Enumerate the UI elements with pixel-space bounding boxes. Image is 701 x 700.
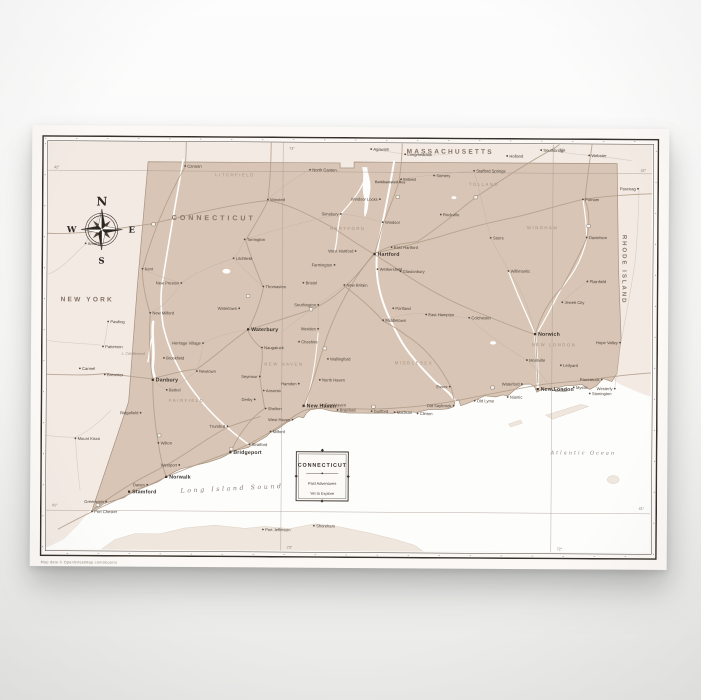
city-marker <box>91 511 93 513</box>
city-marker <box>370 148 372 150</box>
city-marker <box>263 390 265 392</box>
city-label: Southbridge <box>543 148 566 153</box>
city-label: Shoreham <box>316 523 336 528</box>
city-label: Farmington <box>312 262 333 267</box>
city-label: East Hampton <box>428 312 455 317</box>
city-label: Ansonia <box>266 388 282 393</box>
city-marker <box>79 367 81 369</box>
city-marker <box>158 442 160 444</box>
city-label: Heritage Village <box>172 341 202 346</box>
city-label: Holland <box>509 154 524 159</box>
city-label: Port Jefferson <box>265 527 291 532</box>
graticule-label: 73° <box>289 147 295 151</box>
city-label: Essex <box>436 384 447 389</box>
city-label: Pawcatuck <box>580 377 601 382</box>
city-label: East Hartford <box>394 245 419 250</box>
city-label: Danielson <box>589 235 608 240</box>
city-label: Danbury <box>156 377 178 383</box>
city-marker <box>440 214 442 216</box>
map-label: NEW HAVEN <box>264 361 303 366</box>
city-label: Stafford Springs <box>476 168 505 173</box>
city-marker <box>561 301 563 303</box>
city-label: Darien <box>133 482 146 487</box>
city-label: Litchfield <box>236 256 253 261</box>
city-marker <box>262 529 264 531</box>
map-label: TOLLAND <box>469 182 499 187</box>
city-label: Hartford <box>378 252 400 258</box>
map-label: FAIRFIELD <box>169 398 204 403</box>
city-marker <box>196 370 198 372</box>
photo-backdrop: MASSACHUSETTSNEW YORKRHODE ISLANDCONNECT… <box>0 0 701 700</box>
city-marker <box>394 411 396 413</box>
city-marker <box>355 250 357 252</box>
city-label: Norwalk <box>169 475 191 481</box>
city-marker <box>589 393 591 395</box>
city-label: Plainfield <box>590 279 607 284</box>
city-label: Somers <box>436 173 450 178</box>
city-label: Simsbury <box>322 211 340 216</box>
city-marker <box>180 282 182 284</box>
city-marker <box>371 410 373 412</box>
city-label: Westerly <box>597 386 614 391</box>
city-marker <box>382 221 384 223</box>
city-label: North Haven <box>322 377 346 382</box>
city-marker <box>337 409 339 411</box>
city-marker <box>270 431 272 433</box>
city-marker <box>184 165 186 167</box>
map-label: NEW YORK <box>61 296 114 303</box>
city-marker <box>233 257 235 259</box>
graticule-label: 41° <box>52 503 58 507</box>
city-label: Wethersfield <box>380 267 403 272</box>
city-marker <box>298 341 300 343</box>
city-label: Mount Kisco <box>78 436 101 441</box>
city-marker <box>146 484 148 486</box>
city-marker <box>433 175 435 177</box>
map-area: MASSACHUSETTSNEW YORKRHODE ISLANDCONNECT… <box>40 135 660 560</box>
city-label: Hope Valley <box>596 340 619 345</box>
city-marker <box>453 405 455 407</box>
city-marker <box>587 281 589 283</box>
city-marker <box>303 405 305 407</box>
city-label: Cheshire <box>301 339 318 344</box>
city-label: Ledyard <box>563 363 579 368</box>
city-label: Winsted <box>270 197 286 202</box>
city-marker <box>165 476 167 478</box>
city-marker <box>298 383 300 385</box>
city-label: New Britain <box>347 283 369 288</box>
map-label: MIDDLESEX <box>395 360 433 365</box>
city-marker <box>302 282 304 284</box>
map-label: WINDHAM <box>527 225 559 230</box>
city-label: Glastonbury <box>403 269 426 274</box>
city-marker <box>166 389 168 391</box>
city-label: North Canton <box>312 167 337 172</box>
city-label: Putnam <box>585 197 600 202</box>
city-label: Pawling <box>110 319 125 324</box>
city-label: Clinton <box>420 411 433 416</box>
city-marker <box>473 170 475 172</box>
block-island <box>607 476 619 484</box>
city-label: Carmel <box>82 366 95 371</box>
city-label: Norwich <box>538 332 560 338</box>
city-label: Wallingford <box>330 356 351 361</box>
city-label: Niantic <box>510 395 523 400</box>
map-label: Atlantic Ocean <box>550 450 616 456</box>
city-marker <box>317 328 319 330</box>
city-label: Shelton <box>268 406 283 411</box>
city-label: Meriden <box>301 326 317 331</box>
city-marker <box>152 379 154 381</box>
city-marker <box>267 199 269 201</box>
city-label: Longmeadow <box>407 152 432 157</box>
city-label: Groton <box>555 388 568 393</box>
city-label: Mystic <box>576 385 588 390</box>
map-label: Barkhamsted Res <box>375 180 405 184</box>
city-marker <box>425 314 427 316</box>
city-label: Trumbull <box>210 424 226 429</box>
city-marker <box>392 307 394 309</box>
city-label: Naugatuck <box>264 345 285 350</box>
city-label: Thomaston <box>266 284 287 289</box>
city-label: Enfield <box>403 177 416 182</box>
city-label: Guilford <box>374 409 389 414</box>
city-label: Port Chester <box>94 509 118 514</box>
city-label: Watertown <box>218 306 238 311</box>
city-marker <box>238 307 240 309</box>
compass-north-label: N <box>96 194 107 208</box>
city-marker <box>259 376 261 378</box>
city-label: Middletown <box>385 318 406 323</box>
city-marker <box>534 333 536 335</box>
city-marker <box>313 525 315 527</box>
city-marker <box>319 379 321 381</box>
city-label: Stonington <box>592 391 612 396</box>
city-marker <box>508 270 510 272</box>
compass-east-label: E <box>128 226 135 236</box>
city-label: Torrington <box>247 237 266 242</box>
city-marker <box>382 319 384 321</box>
city-marker <box>417 413 419 415</box>
city-label: Hamden <box>281 381 297 386</box>
city-marker <box>468 317 470 319</box>
city-marker <box>178 464 180 466</box>
city-marker <box>261 347 263 349</box>
city-label: West Hartford <box>328 248 354 253</box>
city-label: Bethel <box>169 387 181 392</box>
city-marker <box>588 155 590 157</box>
city-marker <box>507 396 509 398</box>
city-marker <box>202 342 204 344</box>
city-label: Brewster <box>107 372 124 377</box>
city-label: Kent <box>145 266 154 271</box>
city-marker <box>327 358 329 360</box>
graticule-label: 41° <box>639 507 645 511</box>
map-label: NEW LONDON <box>532 342 577 347</box>
city-label: New Milford <box>152 310 174 315</box>
city-label: Stratford <box>252 442 268 447</box>
map-label: HARTFORD <box>330 226 366 231</box>
city-marker <box>247 328 249 330</box>
city-label: Branford <box>340 408 356 413</box>
city-label: Madison <box>397 410 413 415</box>
city-marker <box>140 412 142 414</box>
legend-line-1: Past Adventures <box>308 481 336 486</box>
city-marker <box>537 388 539 390</box>
city-label: Stamford <box>132 489 156 495</box>
city-marker <box>254 399 256 401</box>
city-label: Seymour <box>241 374 258 379</box>
city-marker <box>449 386 451 388</box>
compass-west-label: W <box>66 225 77 235</box>
city-label: Colchester <box>471 315 491 320</box>
map-label: LITCHFIELD <box>215 172 255 177</box>
city-marker <box>104 374 106 376</box>
city-label: New Preston <box>156 280 180 285</box>
city-label: Waterbury <box>251 327 278 333</box>
legend-title: CONNECTICUT <box>298 463 347 469</box>
city-marker <box>149 312 151 314</box>
city-marker <box>391 246 393 248</box>
city-marker <box>107 321 109 323</box>
city-label: Portland <box>395 306 411 311</box>
city-marker <box>560 364 562 366</box>
city-label: Windsor Locks <box>351 197 378 202</box>
city-label: Bristol <box>306 280 317 285</box>
map-attribution: Map data © OpenStreetMap contributors <box>41 560 118 565</box>
city-marker <box>619 342 621 344</box>
city-label: Westport <box>161 462 178 467</box>
map-label: CONNECTICUT <box>172 215 256 223</box>
city-label: Agawam <box>373 147 390 152</box>
city-label: Storrs <box>493 235 504 240</box>
city-label: Ridgefield <box>120 410 139 415</box>
city-marker <box>229 451 231 453</box>
legend-box: CONNECTICUT Past Adventures Yet to Explo… <box>294 448 350 502</box>
city-label: Milford <box>273 429 286 434</box>
city-marker <box>601 379 603 381</box>
city-label: Old Saybrook <box>427 403 453 408</box>
city-label: Wilton <box>161 440 173 445</box>
city-label: Patterson <box>105 344 123 349</box>
map-label: RHODE ISLAND <box>620 235 626 305</box>
city-label: Willimantic <box>511 269 531 274</box>
city-marker <box>377 268 379 270</box>
graticule-label: 42° <box>641 169 647 173</box>
city-marker <box>142 268 144 270</box>
city-label: Bridgeport <box>233 450 262 456</box>
graticule-label: 42° <box>54 165 60 169</box>
city-marker <box>373 253 375 255</box>
city-label: Jewett City <box>564 300 585 305</box>
city-marker <box>309 169 311 171</box>
city-marker <box>227 425 229 427</box>
city-marker <box>163 357 165 359</box>
city-marker <box>343 284 345 286</box>
city-marker <box>334 264 336 266</box>
city-marker <box>582 199 584 201</box>
city-marker <box>526 359 528 361</box>
city-marker <box>614 388 616 390</box>
city-label: Pascoag <box>620 186 637 191</box>
city-marker <box>265 408 267 410</box>
city-marker <box>75 437 77 439</box>
city-label: Webster <box>591 153 607 158</box>
map-svg: MASSACHUSETTSNEW YORKRHODE ISLANDCONNECT… <box>40 135 660 560</box>
city-marker <box>128 491 130 493</box>
city-marker <box>586 237 588 239</box>
city-marker <box>317 304 319 306</box>
city-label: Windsor <box>385 220 401 225</box>
city-marker <box>506 155 508 157</box>
city-marker <box>292 419 294 421</box>
city-marker <box>379 198 381 200</box>
city-label: Waterford <box>502 382 521 387</box>
graticule-label: 73° <box>287 546 293 550</box>
city-marker <box>474 400 476 402</box>
city-marker <box>340 213 342 215</box>
city-label: Newtown <box>199 369 217 374</box>
city-label: Rockville <box>443 212 460 217</box>
city-label: Old Lyme <box>477 398 495 403</box>
city-label: Greenwich <box>84 499 104 504</box>
city-marker <box>521 383 523 385</box>
legend-line-2: Yet to Explore <box>310 491 334 496</box>
graticule-label: 72° <box>557 547 563 551</box>
city-marker <box>102 346 104 348</box>
city-marker <box>244 238 246 240</box>
city-label: Southington <box>294 302 317 307</box>
city-marker <box>637 188 639 190</box>
city-marker <box>490 237 492 239</box>
city-marker <box>249 443 251 445</box>
city-label: West Haven <box>268 417 291 422</box>
city-label: Derby <box>242 397 254 402</box>
city-marker <box>262 286 264 288</box>
city-label: Montville <box>529 358 546 363</box>
poster: MASSACHUSETTSNEW YORKRHODE ISLANDCONNECT… <box>30 125 670 570</box>
city-label: Canaan <box>187 164 202 169</box>
city-marker <box>85 242 87 244</box>
city-marker <box>540 149 542 151</box>
city-marker <box>105 501 107 503</box>
compass-south-label: S <box>98 256 104 266</box>
map-label: L. Candlewood <box>122 352 146 356</box>
city-label: Brookfield <box>166 355 185 360</box>
